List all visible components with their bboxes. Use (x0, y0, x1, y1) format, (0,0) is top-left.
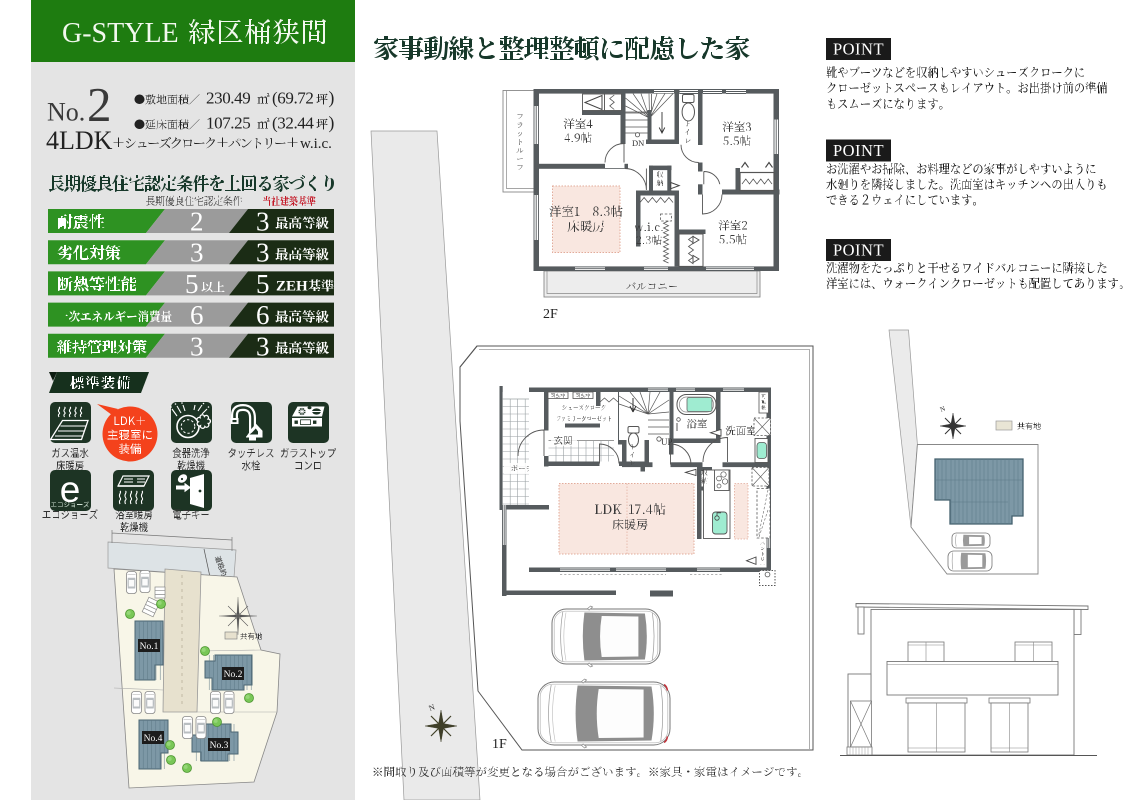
svg-text:): ) (329, 113, 335, 133)
svg-text:DN: DN (632, 138, 644, 148)
svg-text:No.1: No.1 (140, 642, 159, 652)
svg-text:2F: 2F (543, 307, 558, 322)
svg-text:e: e (60, 469, 81, 510)
svg-text:2: 2 (87, 77, 112, 132)
svg-text:230.49: 230.49 (206, 89, 250, 108)
svg-text:POINT: POINT (833, 40, 884, 59)
svg-text:POINT: POINT (833, 241, 884, 260)
svg-text:3: 3 (190, 238, 204, 268)
svg-text:w.i.c.: w.i.c. (300, 136, 332, 152)
svg-text:No.3: No.3 (210, 741, 229, 751)
svg-text:4LDK: 4LDK (46, 126, 113, 155)
svg-text:ZEH: ZEH (276, 278, 308, 294)
svg-text:(32.44: (32.44 (272, 114, 314, 133)
svg-text:G-STYLE: G-STYLE (62, 18, 179, 49)
svg-text:107.25: 107.25 (206, 114, 250, 133)
svg-text:(69.72: (69.72 (272, 89, 314, 108)
svg-text:3: 3 (256, 331, 270, 361)
svg-text:5: 5 (185, 269, 199, 299)
svg-text:POINT: POINT (833, 141, 884, 160)
svg-text:1F: 1F (492, 737, 507, 752)
svg-text:): ) (329, 88, 335, 108)
svg-text:3: 3 (256, 238, 270, 268)
svg-text:3: 3 (190, 331, 204, 361)
svg-text:No.4: No.4 (144, 734, 163, 744)
svg-text:2: 2 (190, 207, 204, 237)
svg-text:5: 5 (256, 269, 270, 299)
svg-text:6: 6 (190, 300, 204, 330)
svg-text:3: 3 (256, 207, 270, 237)
svg-text:No.2: No.2 (224, 670, 243, 680)
svg-text:6: 6 (256, 300, 270, 330)
svg-text:No.: No. (47, 98, 85, 127)
